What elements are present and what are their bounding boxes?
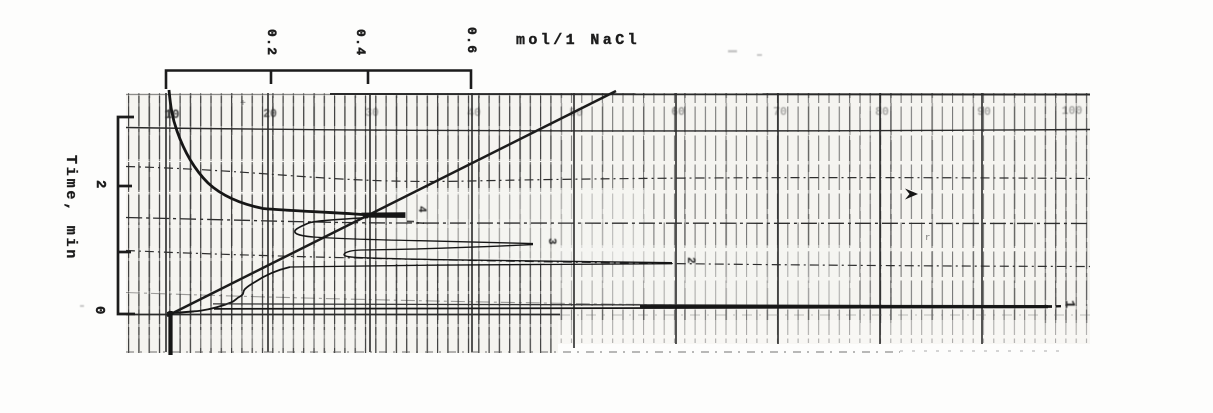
svg-text:100: 100 (1062, 105, 1083, 118)
svg-text:0.2: 0.2 (264, 29, 279, 56)
svg-text:30: 30 (365, 107, 379, 120)
svg-text:Time, min: Time, min (62, 155, 79, 261)
svg-text:40: 40 (467, 107, 481, 120)
svg-text:80: 80 (875, 106, 889, 119)
svg-text:60: 60 (671, 106, 685, 119)
svg-text:0: 0 (91, 306, 107, 314)
svg-text:4: 4 (415, 206, 427, 213)
svg-text:70: 70 (773, 106, 787, 119)
svg-text:2: 2 (92, 180, 108, 188)
svg-text:r: r (925, 233, 930, 243)
svg-text:1: 1 (1061, 300, 1077, 308)
svg-text:0.4: 0.4 (353, 29, 368, 56)
svg-text:2: 2 (684, 257, 696, 264)
svg-text:mol/1 NaCl: mol/1 NaCl (516, 32, 640, 49)
svg-text:90: 90 (977, 106, 991, 119)
svg-text:+: + (240, 99, 246, 110)
svg-text:0.6: 0.6 (464, 27, 479, 54)
svg-text:3: 3 (545, 238, 557, 245)
svg-text:20: 20 (263, 108, 277, 121)
